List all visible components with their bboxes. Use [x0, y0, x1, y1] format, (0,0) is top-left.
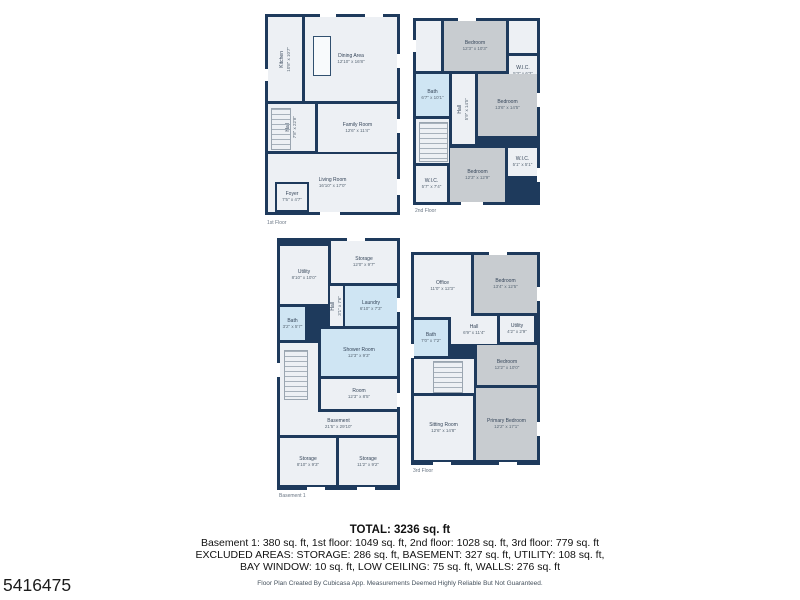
window-marker — [357, 487, 375, 490]
room-label: Hall — [457, 105, 463, 114]
room-foyer: Foyer 7'5" x 4'7" — [275, 182, 309, 212]
room-wic: W.I.C. 5'1" x 5'1" — [508, 148, 537, 176]
room-primary-bedroom: Primary Bedroom 12'2" x 17'1" — [476, 388, 537, 460]
basement-plan: Utility 8'10" x 10'0" Storage 12'0" x 9'… — [277, 238, 400, 490]
room-bedroom: Bedroom 12'3" x 10'3" — [444, 21, 506, 71]
window-marker — [397, 179, 400, 195]
room-bath: Bath 7'0" x 7'2" — [414, 320, 448, 356]
room-nook — [509, 21, 537, 53]
room-dims: 4'2" x 2'9" — [507, 329, 527, 334]
total-area-text: TOTAL: 3236 sq. ft — [0, 524, 800, 536]
room-dims: 12'3" x 8'5" — [348, 394, 370, 399]
window-marker — [397, 393, 400, 407]
room-dims: 16'10" x 17'0" — [319, 183, 346, 188]
window-marker — [347, 238, 365, 241]
window-marker — [320, 14, 336, 17]
window-marker — [411, 344, 414, 358]
room-storage: Storage 11'2" x 9'2" — [339, 438, 397, 485]
photo-id-text: 5416475 — [3, 575, 71, 596]
window-marker — [433, 462, 451, 465]
room-family-room: Family Room 12'6" x 11'4" — [318, 104, 397, 152]
stairs-icon — [284, 350, 308, 400]
window-marker — [489, 252, 507, 255]
disclaimer-text: Floor Plan Created By Cubicasa App. Meas… — [0, 580, 800, 587]
room-storage: Storage 8'10" x 9'3" — [280, 438, 336, 485]
room-dims: 12'6" x 11'4" — [345, 128, 369, 133]
window-marker — [537, 168, 540, 182]
room-dims: 11'2" x 9'2" — [357, 462, 379, 467]
room-bath: Bath 6'7" x 10'1" — [416, 74, 449, 116]
floor-name-label: Basement 1 — [279, 493, 306, 499]
window-marker — [365, 14, 383, 17]
room-bedroom: Bedroom 12'2" x 10'0" — [477, 345, 537, 385]
room-dims: 6'10" x 7'3" — [360, 306, 382, 311]
window-marker — [307, 487, 325, 490]
stairs-icon — [419, 122, 448, 162]
floor-name-label: 1st Floor — [267, 220, 286, 226]
floor-name-label: 3rd Floor — [413, 468, 433, 474]
room-dims: 5'9" x 14'5" — [464, 98, 469, 120]
room-bedroom: Bedroom 13'6" x 14'5" — [478, 74, 537, 136]
window-marker — [537, 93, 540, 107]
room-dims: 7'5" x 4'7" — [282, 197, 302, 202]
floor-breakdown-text: Basement 1: 380 sq. ft, 1st floor: 1049 … — [0, 537, 800, 549]
window-marker — [397, 54, 400, 68]
window-marker — [458, 18, 476, 21]
room-dims: 3'1" x 7'6" — [337, 296, 342, 316]
room-dims: 13'4" x 12'5" — [493, 284, 518, 289]
room-dims: 12'10" x 16'8" — [337, 59, 364, 64]
window-marker — [461, 202, 483, 205]
window-marker — [320, 212, 340, 215]
window-marker — [277, 363, 280, 377]
room-shower-room: Shower Room 12'3" x 9'3" — [321, 329, 397, 376]
room-dims: 13'6" x 14'5" — [495, 105, 520, 110]
room-bedroom: Bedroom 13'4" x 12'5" — [474, 255, 537, 313]
room-label: Hall — [330, 302, 336, 311]
room-dims: 21'5" x 29'10" — [325, 424, 352, 429]
room-office: Office 11'0" x 12'3" — [414, 255, 471, 317]
window-marker — [413, 40, 416, 52]
window-marker — [499, 462, 517, 465]
excluded-areas-text-2: BAY WINDOW: 10 sq. ft, LOW CEILING: 75 s… — [0, 561, 800, 573]
window-marker — [537, 422, 540, 436]
room-dims: 12'2" x 10'0" — [495, 365, 520, 370]
room-kitchen: Kitchen 10'8" x 10'7" — [268, 17, 302, 101]
room-utility: Utility 4'2" x 2'9" — [500, 316, 534, 342]
room-hall: Hall 6'9" x 11'4" — [451, 316, 497, 344]
third-floor-plan: Office 11'0" x 12'3" Bedroom 13'4" x 12'… — [411, 252, 540, 465]
kitchen-island-icon — [313, 36, 331, 76]
room-utility: Utility 8'10" x 10'0" — [280, 246, 328, 304]
room-bedroom: Bedroom 12'3" x 12'9" — [450, 148, 505, 202]
stairs-icon — [433, 361, 463, 393]
room-dims: 12'3" x 10'3" — [463, 46, 488, 51]
room-dims: 5'1" x 5'1" — [513, 162, 533, 167]
room-storage: Storage 12'0" x 9'7" — [331, 241, 397, 283]
room-dims: 11'0" x 12'3" — [430, 286, 454, 291]
room-basement: Basement 21'5" x 29'10" — [280, 412, 397, 435]
stairs-icon — [271, 108, 291, 150]
window-marker — [265, 69, 268, 81]
window-marker — [537, 287, 540, 301]
room-bath: Bath 3'2" x 5'7" — [280, 307, 305, 340]
room-hall: Hall 5'9" x 14'5" — [452, 74, 475, 144]
room-dims: 6'9" x 11'4" — [463, 330, 485, 335]
room-dims: 8'10" x 10'0" — [292, 275, 317, 280]
window-marker — [397, 298, 400, 312]
room-dims: 5'7" x 7'4" — [422, 184, 442, 189]
room-laundry: Laundry 6'10" x 7'3" — [345, 286, 397, 326]
floor-name-label: 2nd Floor — [415, 208, 436, 214]
room-label: Kitchen — [279, 51, 285, 68]
room-landing — [416, 21, 441, 71]
room-dims: 8'10" x 9'3" — [297, 462, 319, 467]
room-dims: 7'8" x 22'8" — [292, 116, 297, 138]
first-floor-plan: Kitchen 10'8" x 10'7" Dining Area 12'10"… — [265, 14, 400, 215]
excluded-areas-text-1: EXCLUDED AREAS: STORAGE: 286 sq. ft, BAS… — [0, 549, 800, 561]
second-floor-plan: Bedroom 12'3" x 10'3" W.I.C. 5'3" x 6'3"… — [413, 18, 540, 205]
room-dims: 6'7" x 10'1" — [421, 95, 443, 100]
room-dims: 10'8" x 10'7" — [286, 47, 291, 72]
window-marker — [397, 119, 400, 133]
room-dims: 12'0" x 9'7" — [353, 262, 375, 267]
room-sitting-room: Sitting Room 12'6" x 14'8" — [414, 396, 473, 460]
room-dims: 12'3" x 12'9" — [465, 175, 490, 180]
room-room: Room 12'3" x 8'5" — [321, 379, 397, 409]
room-dims: 12'6" x 14'8" — [431, 428, 456, 433]
room-dims: 3'2" x 5'7" — [283, 324, 303, 329]
room-hall: Hall 3'1" x 7'6" — [330, 286, 343, 326]
room-wic: W.I.C. 5'7" x 7'4" — [416, 166, 447, 202]
room-dims: 12'3" x 9'3" — [348, 353, 370, 358]
room-dims: 7'0" x 7'2" — [421, 338, 441, 343]
room-dims: 12'2" x 17'1" — [494, 424, 519, 429]
